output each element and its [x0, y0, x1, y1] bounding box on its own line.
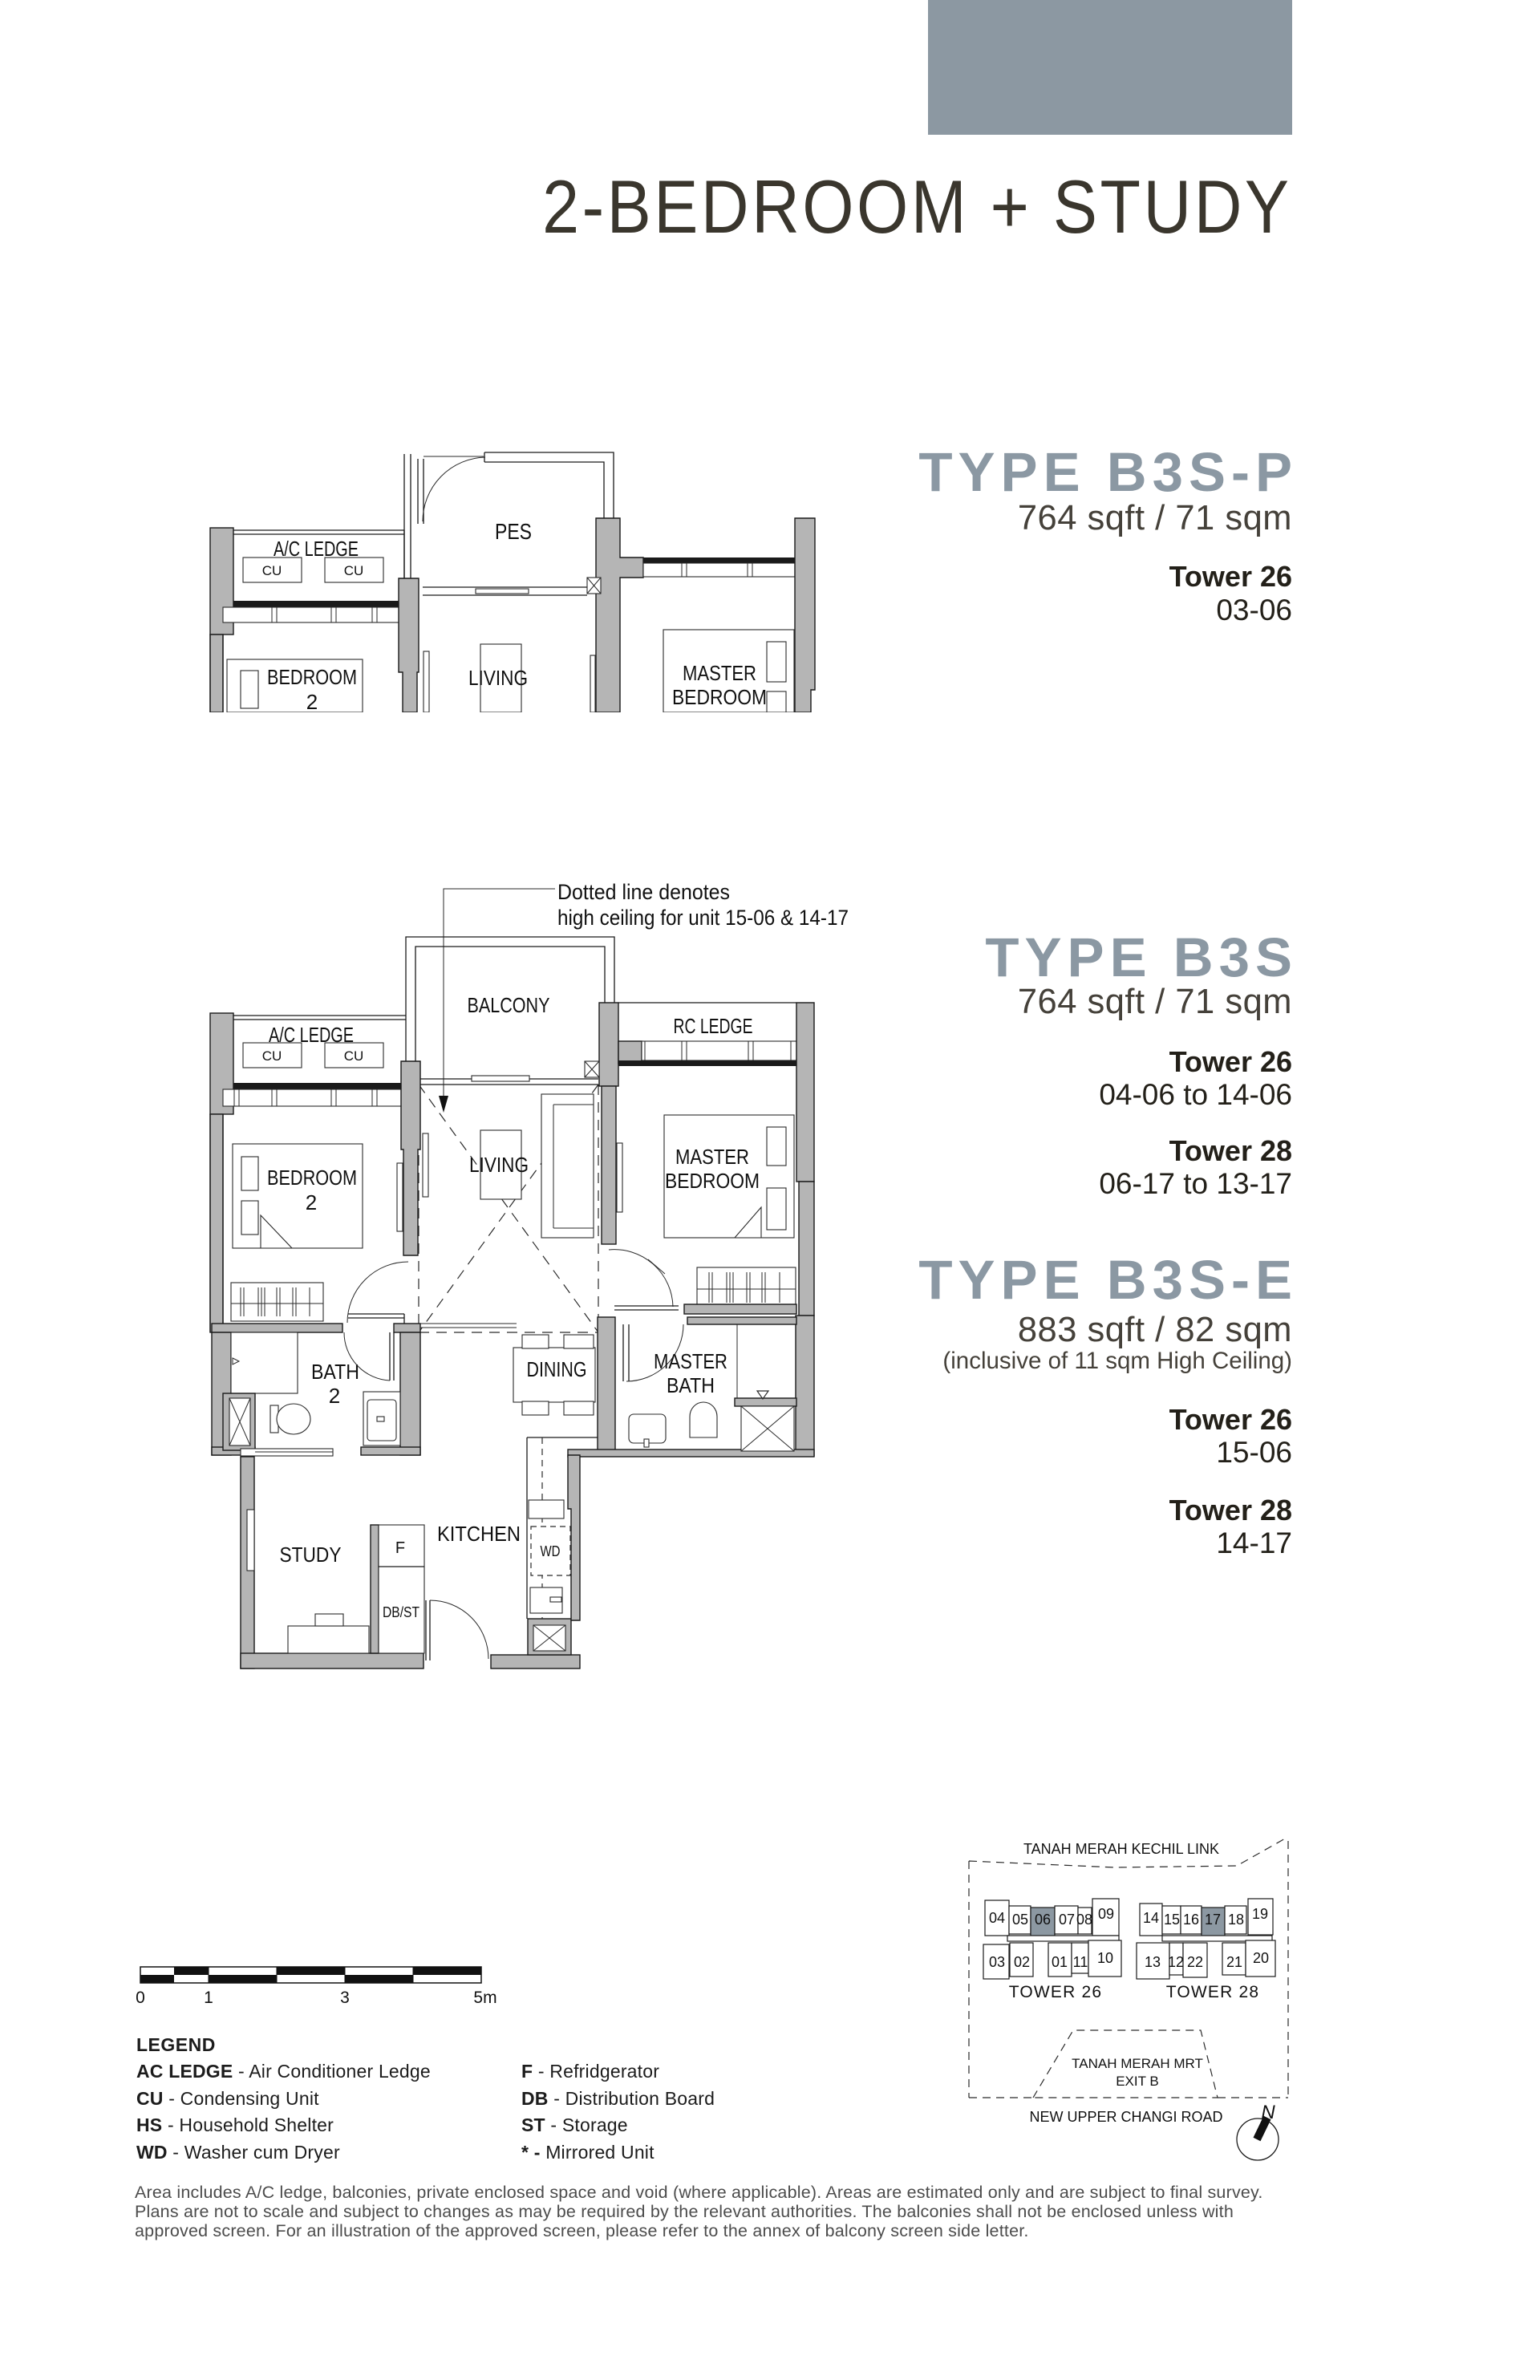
svg-text:EXIT B: EXIT B	[1116, 2074, 1159, 2089]
svg-text:13: 13	[1145, 1954, 1161, 1970]
svg-text:CU: CU	[262, 563, 282, 578]
svg-text:MASTER: MASTER	[654, 1349, 727, 1373]
svg-text:14: 14	[1143, 1910, 1159, 1926]
svg-text:2: 2	[306, 1190, 317, 1214]
svg-text:LIVING: LIVING	[468, 666, 528, 690]
svg-text:3: 3	[340, 1989, 350, 2007]
svg-text:BEDROOM: BEDROOM	[267, 665, 357, 689]
svg-text:TOWER 28: TOWER 28	[1166, 1983, 1260, 2001]
svg-text:1: 1	[204, 1989, 213, 2007]
svg-text:BEDROOM: BEDROOM	[665, 1169, 760, 1193]
svg-text:PES: PES	[495, 519, 532, 544]
svg-text:BATH: BATH	[667, 1373, 715, 1397]
svg-text:19: 19	[1252, 1906, 1268, 1922]
svg-text:Dotted line denotes: Dotted line denotes	[557, 880, 730, 904]
svg-text:01: 01	[1052, 1954, 1068, 1970]
svg-text:11: 11	[1073, 1954, 1088, 1970]
svg-text:BALCONY: BALCONY	[468, 993, 550, 1017]
svg-text:CU: CU	[344, 1048, 364, 1064]
svg-text:18: 18	[1228, 1912, 1244, 1928]
svg-text:BATH: BATH	[311, 1360, 359, 1384]
svg-text:21: 21	[1226, 1954, 1242, 1970]
svg-text:NEW UPPER CHANGI ROAD: NEW UPPER CHANGI ROAD	[1029, 2109, 1222, 2125]
svg-text:5m: 5m	[473, 1989, 496, 2007]
svg-text:0: 0	[136, 1989, 145, 2007]
svg-text:KITCHEN: KITCHEN	[437, 1522, 521, 1546]
svg-text:high ceiling for unit 15-06 &: high ceiling for unit 15-06 & 14-17	[557, 906, 849, 930]
svg-text:MASTER: MASTER	[675, 1145, 749, 1169]
svg-text:DB/ST: DB/ST	[383, 1604, 419, 1620]
svg-text:N: N	[1261, 2102, 1275, 2123]
svg-text:STUDY: STUDY	[280, 1543, 342, 1567]
svg-text:RC LEDGE: RC LEDGE	[674, 1014, 753, 1038]
svg-text:03: 03	[989, 1954, 1005, 1970]
svg-text:17: 17	[1205, 1912, 1221, 1928]
svg-text:F: F	[395, 1539, 405, 1557]
svg-text:12: 12	[1168, 1954, 1184, 1970]
svg-text:05: 05	[1012, 1912, 1028, 1928]
svg-text:07: 07	[1059, 1912, 1075, 1928]
svg-text:09: 09	[1098, 1906, 1114, 1922]
svg-text:08: 08	[1076, 1912, 1092, 1928]
svg-text:LIVING: LIVING	[469, 1153, 529, 1177]
svg-text:06: 06	[1035, 1912, 1051, 1928]
svg-text:CU: CU	[344, 563, 364, 578]
svg-text:TANAH MERAH MRT: TANAH MERAH MRT	[1072, 2056, 1203, 2071]
svg-text:BEDROOM: BEDROOM	[672, 685, 767, 709]
svg-text:MASTER: MASTER	[683, 661, 756, 685]
svg-text:CU: CU	[262, 1048, 282, 1064]
svg-text:15: 15	[1164, 1912, 1180, 1928]
svg-text:DINING: DINING	[527, 1357, 587, 1381]
svg-text:20: 20	[1253, 1950, 1269, 1966]
svg-text:BEDROOM: BEDROOM	[267, 1166, 357, 1190]
svg-text:2: 2	[306, 690, 318, 712]
svg-text:WD: WD	[541, 1543, 561, 1559]
svg-text:02: 02	[1014, 1954, 1030, 1970]
svg-text:10: 10	[1097, 1950, 1113, 1966]
svg-text:04: 04	[989, 1910, 1005, 1926]
svg-text:TOWER 26: TOWER 26	[1009, 1983, 1103, 2001]
svg-text:TANAH MERAH KECHIL LINK: TANAH MERAH KECHIL LINK	[1023, 1841, 1219, 1857]
svg-text:16: 16	[1183, 1912, 1199, 1928]
svg-text:22: 22	[1187, 1954, 1203, 1970]
svg-text:2: 2	[329, 1384, 340, 1408]
